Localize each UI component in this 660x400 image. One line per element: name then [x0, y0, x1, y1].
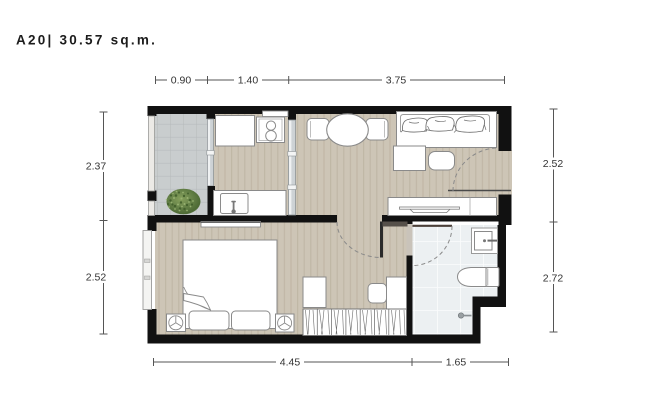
svg-text:3.75: 3.75 [386, 75, 407, 87]
svg-text:2.52: 2.52 [543, 158, 564, 170]
svg-text:1.40: 1.40 [238, 75, 259, 87]
svg-text:2.52: 2.52 [86, 272, 107, 284]
svg-text:2.37: 2.37 [86, 161, 107, 173]
svg-text:A20| 30.57 sq.m.: A20| 30.57 sq.m. [16, 33, 157, 48]
svg-text:2.72: 2.72 [543, 273, 564, 285]
svg-text:0.90: 0.90 [171, 75, 192, 87]
svg-text:4.45: 4.45 [280, 357, 301, 369]
svg-text:1.65: 1.65 [446, 357, 467, 369]
